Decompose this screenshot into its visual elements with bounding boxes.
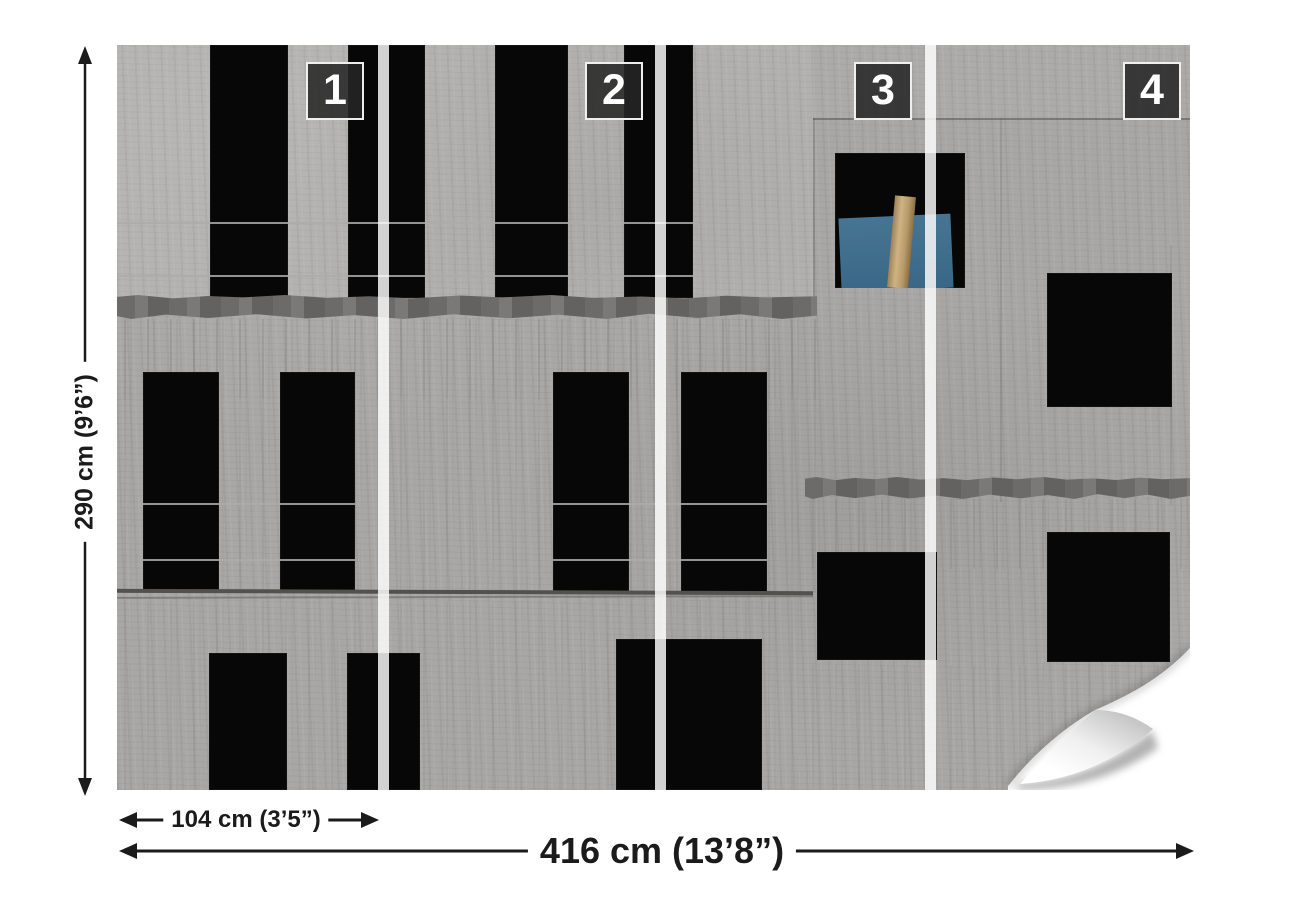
arrow-up-icon (78, 46, 92, 64)
dimension-lines (0, 0, 1300, 898)
height-dimension-label: 290 cm (9’6”) (65, 362, 106, 542)
product-preview: 1 2 3 4 (0, 0, 1300, 898)
arrow-right-icon (1176, 843, 1194, 859)
arrow-right-icon (361, 812, 379, 828)
arrow-left-icon (119, 843, 137, 859)
total-width-dimension-label: 416 cm (13’8”) (528, 828, 796, 874)
arrow-left-icon (119, 812, 137, 828)
panel-width-dimension-label: 104 cm (3’5”) (163, 804, 328, 836)
arrow-down-icon (78, 778, 92, 796)
